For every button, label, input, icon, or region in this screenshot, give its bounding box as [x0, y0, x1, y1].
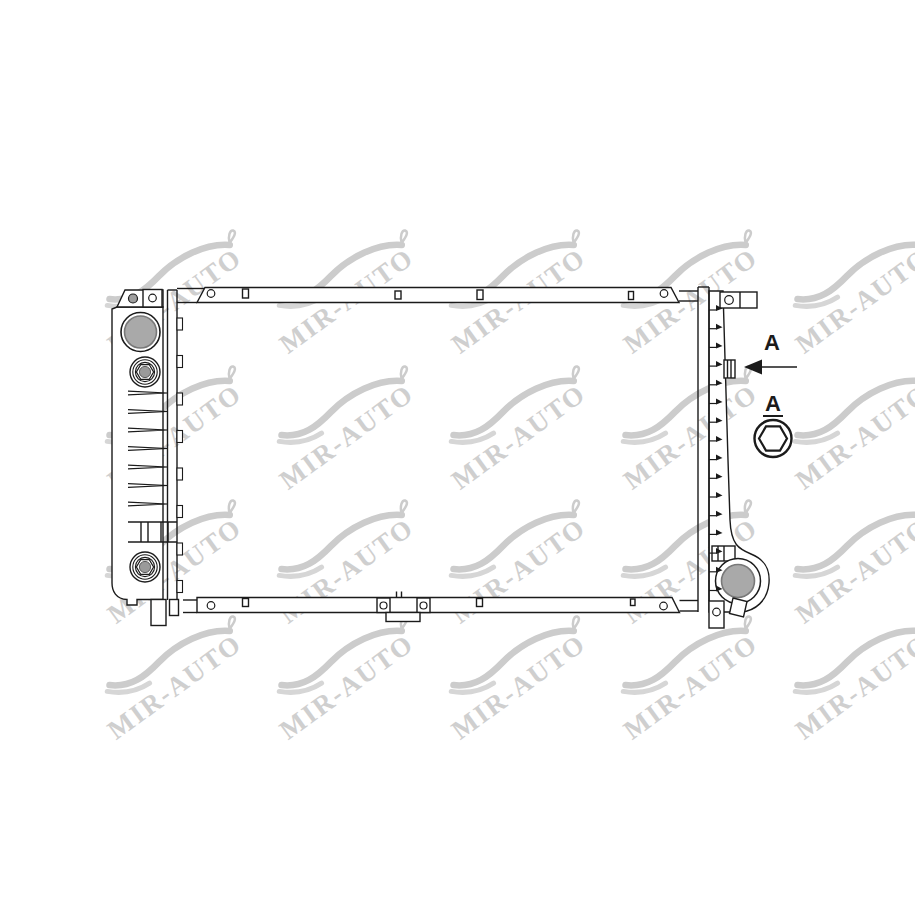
- plate-tooth: [177, 581, 183, 593]
- bottom-rail-hole-left: [207, 602, 215, 610]
- watermark: MIR-AUTO: [272, 366, 419, 495]
- nut-detail: [755, 420, 792, 457]
- section-arrow-label: A: [764, 330, 780, 355]
- watermark: MIR-AUTO: [788, 500, 915, 629]
- bottom-rail-notch: [243, 599, 249, 607]
- bracket-hole-filled: [129, 294, 138, 303]
- watermark: MIR-AUTO: [788, 366, 915, 495]
- drain-plug: [130, 552, 160, 582]
- right-bracket-hole: [725, 296, 734, 305]
- right-tab-hole: [713, 608, 721, 616]
- top-rail-notch: [395, 291, 401, 299]
- watermark: MIR-AUTO: [444, 616, 591, 745]
- watermark: MIR-AUTO: [788, 230, 915, 359]
- bottom-rail-hole-right: [660, 602, 668, 610]
- section-arrow: [744, 360, 797, 375]
- top-rail: [177, 288, 698, 303]
- plate-tooth: [177, 356, 183, 368]
- plate-tooth: [177, 393, 183, 405]
- radiator-line-drawing: MIR-AUTOMIR-AUTOMIR-AUTOMIR-AUTOMIR-AUTO…: [0, 0, 915, 915]
- plate-tooth: [177, 468, 183, 480]
- bottom-rail-notch: [477, 599, 483, 607]
- top-rail-notch: [629, 292, 634, 300]
- watermark: MIR-AUTO: [616, 616, 763, 745]
- top-rail-hole-right: [660, 290, 668, 298]
- plate-tooth: [177, 506, 183, 518]
- section-detail-label: A: [765, 391, 781, 416]
- top-rail-notch: [477, 290, 483, 300]
- top-rail-hole-left: [207, 290, 215, 298]
- watermark: MIR-AUTO: [616, 366, 763, 495]
- top-rail-notch: [243, 289, 249, 298]
- bottom-rail-notch: [631, 599, 636, 606]
- filler-port: [121, 313, 160, 352]
- bracket-hole: [149, 294, 157, 302]
- bottom-rail: [183, 592, 698, 622]
- right-tank: [698, 287, 769, 628]
- plate-tooth: [177, 431, 183, 443]
- left-plate-foot: [170, 600, 179, 616]
- right-slanted-tab: [730, 598, 748, 617]
- watermark-layer: MIR-AUTOMIR-AUTOMIR-AUTOMIR-AUTOMIR-AUTO…: [100, 230, 915, 745]
- watermark: MIR-AUTO: [100, 616, 247, 745]
- catalog-product-image: MIR-AUTOMIR-AUTOMIR-AUTOMIR-AUTOMIR-AUTO…: [0, 0, 915, 915]
- bleed-fitting: [724, 360, 735, 378]
- watermark: MIR-AUTO: [444, 366, 591, 495]
- upper-plug: [130, 357, 160, 387]
- watermark: MIR-AUTO: [788, 616, 915, 745]
- watermark: MIR-AUTO: [272, 616, 419, 745]
- plate-tooth: [177, 543, 183, 555]
- left-bottom-tab: [151, 600, 166, 626]
- plate-tooth: [177, 318, 183, 330]
- outlet-port: [716, 559, 761, 604]
